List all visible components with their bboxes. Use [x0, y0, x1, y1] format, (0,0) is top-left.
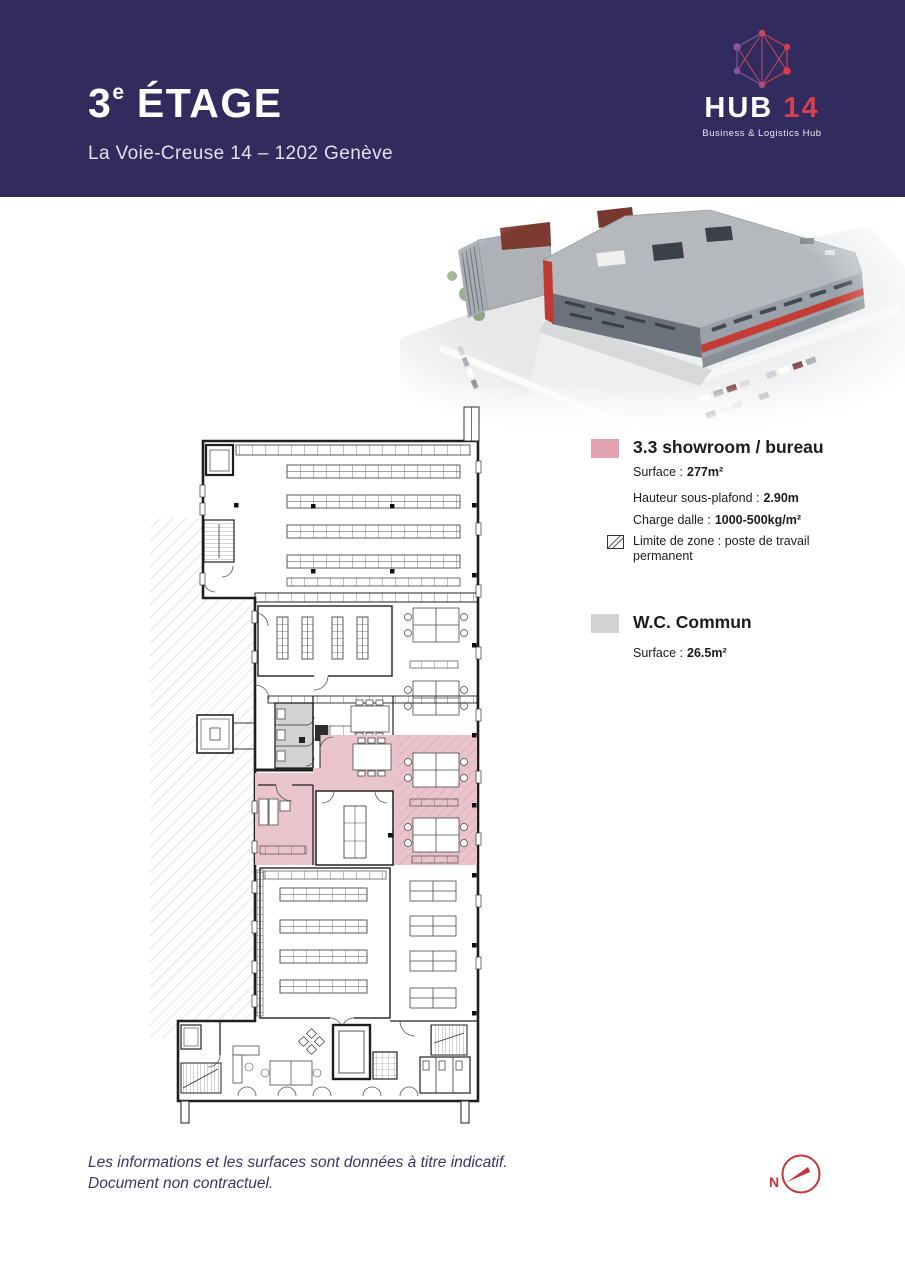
hub14-logo: HUB 14 Business & Logistics Hub [698, 30, 826, 139]
logo-brand: HUB [704, 92, 773, 124]
limit-zone-hatch-swatch [607, 535, 624, 549]
legend-zone-title: W.C. Commun [633, 612, 752, 633]
limit-zone-note: Limite de zone : poste de travail perman… [633, 534, 833, 564]
disclaimer-line2: Document non contractuel. [88, 1173, 608, 1194]
header-band: 3e ÉTAGE La Voie-Creuse 14 – 1202 Genève [0, 0, 905, 197]
logo-number: 14 [783, 92, 819, 124]
floor-plan [148, 403, 488, 1127]
disclaimer-line1: Les informations et les surfaces sont do… [88, 1152, 608, 1173]
legend-zone-showroom: 3.3 showroom / bureau Surface :277m² Hau… [591, 437, 903, 564]
column [181, 1101, 189, 1123]
warehouse-room-bottom [257, 868, 456, 1030]
address-line: La Voie-Creuse 14 – 1202 Genève [88, 143, 393, 165]
legend: 3.3 showroom / bureau Surface :277m² Hau… [591, 437, 903, 661]
brochure-page: 3e ÉTAGE La Voie-Creuse 14 – 1202 Genève [0, 0, 905, 1280]
hub14-network-icon [731, 30, 793, 88]
legend-detail-charge: Charge dalle :1000-500kg/m² [633, 512, 903, 528]
legend-detail-surface: Surface :277m² [633, 464, 903, 480]
legend-detail-hauteur: Hauteur sous-plafond :2.90m [633, 490, 903, 506]
floor-word: ÉTAGE [124, 80, 283, 126]
meeting-table [351, 700, 389, 738]
legend-zone-wc: W.C. Commun Surface :26.5m² [591, 612, 903, 661]
page-title: 3e ÉTAGE [88, 82, 283, 124]
building-aerial-photo [400, 198, 905, 436]
compass-needle [787, 1167, 810, 1182]
north-compass: N [758, 1138, 836, 1204]
floor-ordinal: e [112, 81, 124, 104]
showroom-color-swatch [591, 439, 619, 458]
bistro-table [299, 1029, 325, 1055]
roof-duct [464, 407, 479, 441]
floor-number: 3 [88, 80, 112, 126]
legend-zone-title: 3.3 showroom / bureau [633, 437, 824, 458]
column [461, 1101, 469, 1123]
legend-detail-surface: Surface :26.5m² [633, 645, 903, 661]
stairs [431, 1025, 467, 1055]
warehouse-room-top [204, 445, 478, 602]
wc-color-swatch [591, 614, 619, 633]
entrance-zone [178, 1021, 478, 1096]
north-label: N [769, 1174, 779, 1190]
wc-commun-zone [255, 696, 314, 771]
disclaimer-note: Les informations et les surfaces sont do… [88, 1152, 608, 1194]
logo-wordmark: HUB 14 [698, 94, 826, 123]
storage-room-middle [255, 606, 392, 690]
logo-tagline: Business & Logistics Hub [698, 128, 826, 139]
